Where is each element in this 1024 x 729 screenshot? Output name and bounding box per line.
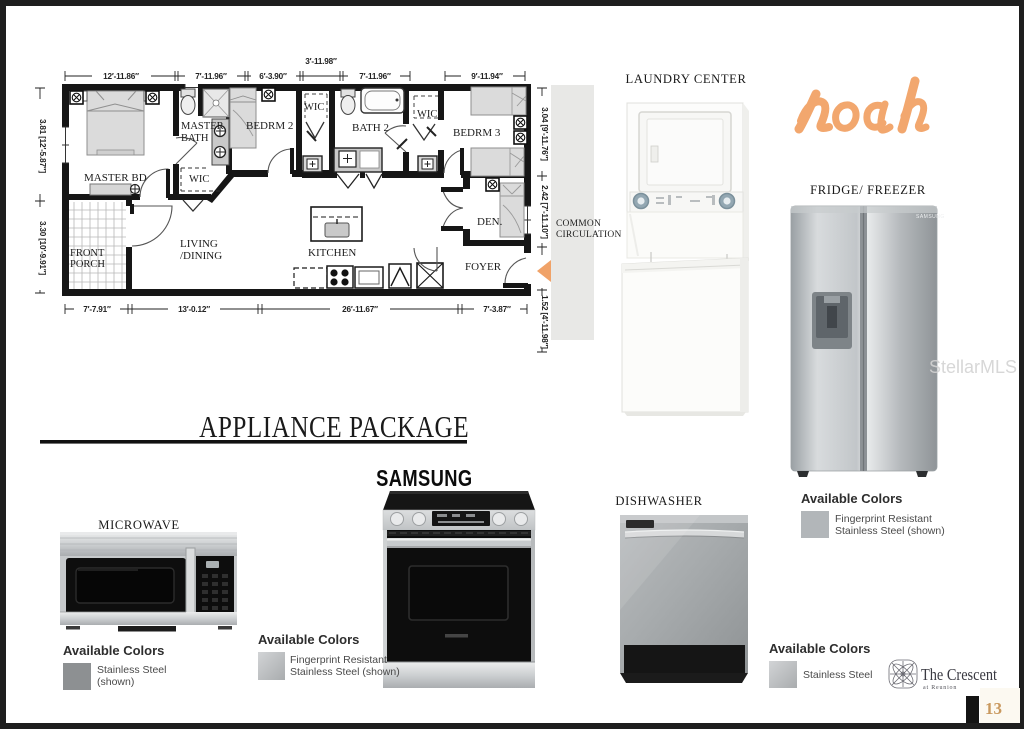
svg-text:Stainless Steel (shown): Stainless Steel (shown) [835, 525, 945, 537]
svg-text:WIC: WIC [417, 109, 437, 120]
svg-text:3.30 [10′-9.91″]: 3.30 [10′-9.91″] [38, 221, 47, 276]
svg-text:1.52 [4′-11.98″]: 1.52 [4′-11.98″] [540, 295, 549, 349]
svg-text:7′-11.96″: 7′-11.96″ [359, 72, 391, 81]
svg-text:Available Colors: Available Colors [769, 641, 870, 656]
svg-text:MICROWAVE: MICROWAVE [98, 518, 179, 532]
svg-text:StellarMLS: StellarMLS [929, 357, 1017, 377]
svg-text:3.81 [12′-5.87″]: 3.81 [12′-5.87″] [38, 119, 47, 174]
svg-text:LIVING: LIVING [180, 238, 218, 250]
svg-text:FRONT: FRONT [70, 248, 105, 259]
svg-text:7′-11.96″: 7′-11.96″ [195, 72, 227, 81]
svg-text:COMMON: COMMON [556, 219, 601, 229]
svg-text:MASTER: MASTER [181, 121, 224, 132]
svg-text:(shown): (shown) [97, 676, 134, 688]
svg-text:3′-11.98″: 3′-11.98″ [305, 57, 337, 66]
svg-text:KITCHEN: KITCHEN [308, 247, 356, 259]
svg-text:7′-3.87″: 7′-3.87″ [483, 305, 511, 314]
svg-text:PORCH: PORCH [70, 259, 105, 270]
svg-text:7′-7.91″: 7′-7.91″ [83, 305, 111, 314]
svg-text:6′-3.90″: 6′-3.90″ [259, 72, 287, 81]
svg-text:APPLIANCE PACKAGE: APPLIANCE PACKAGE [199, 411, 469, 445]
svg-text:BEDRM 2: BEDRM 2 [246, 120, 293, 132]
svg-text:SAMSUNG: SAMSUNG [916, 214, 945, 220]
svg-text:13: 13 [985, 699, 1002, 718]
svg-text:3.04 [9′-11.76″]: 3.04 [9′-11.76″] [540, 107, 549, 161]
svg-text:Fingerprint Resistant: Fingerprint Resistant [835, 513, 932, 525]
svg-text:BATH 2: BATH 2 [352, 122, 389, 134]
svg-text:12′-11.86″: 12′-11.86″ [103, 72, 139, 81]
svg-text:CIRCULATION: CIRCULATION [556, 230, 622, 240]
svg-text:13′-0.12″: 13′-0.12″ [178, 305, 210, 314]
svg-text:2.42 [7′-11.10″]: 2.42 [7′-11.10″] [540, 185, 549, 239]
svg-text:26′-11.67″: 26′-11.67″ [342, 305, 378, 314]
svg-text:at Reunion: at Reunion [923, 685, 957, 691]
svg-text:Available Colors: Available Colors [258, 632, 359, 647]
svg-text:Stainless Steel: Stainless Steel [97, 664, 166, 676]
svg-text:SAMSUNG: SAMSUNG [376, 466, 472, 492]
svg-text:WIC: WIC [304, 102, 324, 113]
svg-text:/DINING: /DINING [180, 250, 222, 262]
svg-text:DISHWASHER: DISHWASHER [615, 494, 702, 508]
svg-text:DEN.: DEN. [477, 216, 503, 228]
svg-text:Available Colors: Available Colors [63, 643, 164, 658]
svg-text:Available Colors: Available Colors [801, 491, 902, 506]
svg-text:BATH: BATH [181, 133, 209, 144]
svg-text:Fingerprint Resistant: Fingerprint Resistant [290, 654, 387, 666]
svg-text:BEDRM 3: BEDRM 3 [453, 127, 501, 139]
svg-text:FOYER: FOYER [465, 261, 502, 273]
svg-text:LAUNDRY CENTER: LAUNDRY CENTER [626, 72, 747, 86]
svg-text:MASTER BD: MASTER BD [84, 172, 147, 184]
svg-text:Stainless Steel (shown): Stainless Steel (shown) [290, 666, 400, 678]
svg-text:WIC: WIC [189, 174, 209, 185]
svg-text:The Crescent: The Crescent [921, 665, 997, 684]
svg-text:Stainless Steel: Stainless Steel [803, 669, 872, 681]
svg-text:9′-11.94″: 9′-11.94″ [471, 72, 503, 81]
svg-text:FRIDGE/ FREEZER: FRIDGE/ FREEZER [810, 183, 926, 197]
